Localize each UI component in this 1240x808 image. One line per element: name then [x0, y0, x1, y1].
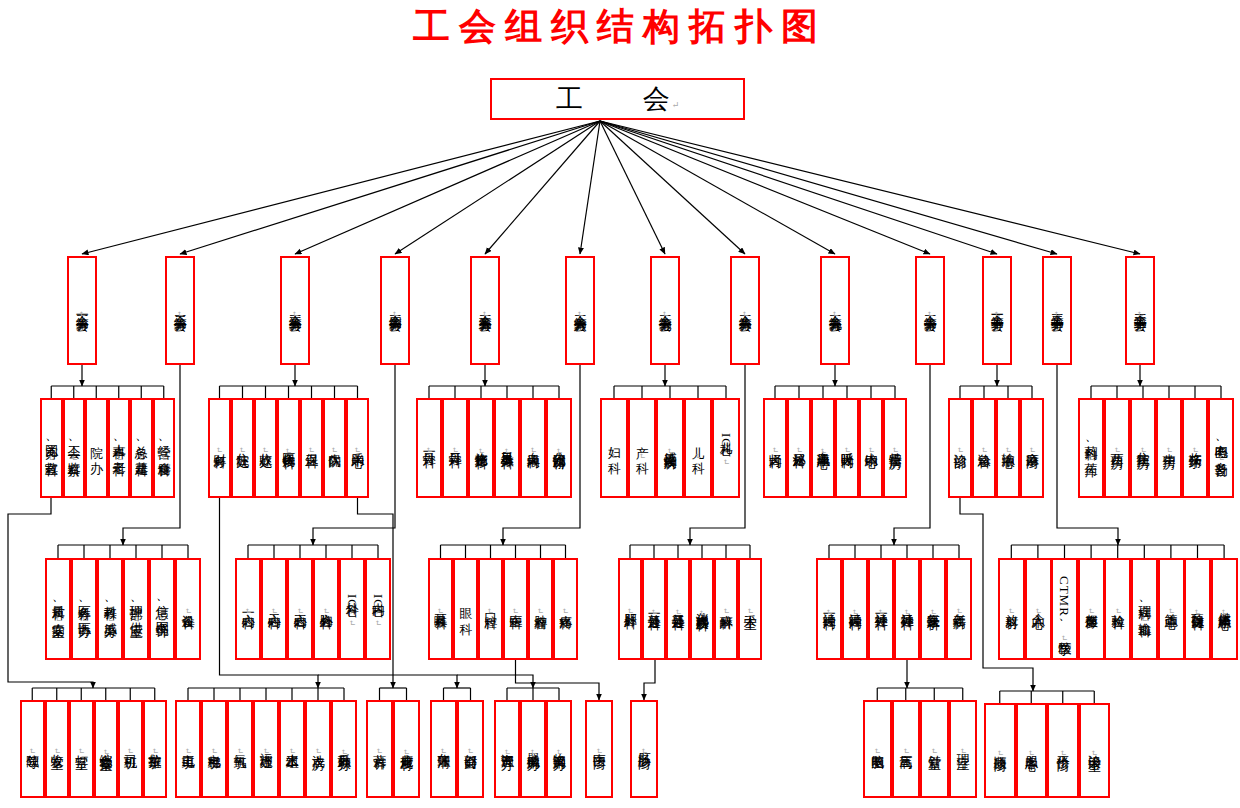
dept-box: 内保队: [323, 398, 346, 498]
dept-box: 康顺门诊: [984, 703, 1016, 798]
dept-box-label: 临床药学: [1188, 442, 1201, 454]
dept-box-label: 院 办: [90, 436, 103, 460]
branch-box-label: 工会第一分会: [75, 304, 88, 318]
dept-box: 健康体检中心: [1211, 558, 1238, 660]
dept-box-label: 心电图、多普勒: [1214, 434, 1227, 462]
dept-box-label: 普通外二科: [671, 603, 684, 616]
dept-box-label: 老年病科: [952, 603, 965, 615]
dept-box-label: 中医门诊: [592, 743, 605, 755]
dept-box-label: 护理部、供应室: [129, 595, 142, 623]
dept-box-label: 设备科: [181, 604, 194, 615]
dept-box-label: 预防保健科: [1191, 603, 1204, 616]
dept-box: 新针室: [920, 700, 949, 798]
dept-box-label: 血液净化中心: [816, 441, 829, 455]
dept-box: 筛查中心: [1158, 558, 1185, 660]
dept-box-label: 神经内二科: [848, 603, 861, 616]
dept-box-label: 康顺门诊: [993, 745, 1006, 757]
dept-box: 外科ICU: [339, 558, 365, 660]
dept-box: 心内三科: [287, 558, 313, 660]
dept-box-label: 信息、图书统计: [155, 595, 168, 623]
dept-box-label: 物资采购办: [552, 743, 565, 756]
dept-box-label: 心胸外科: [319, 603, 332, 615]
dept-box: 中药房: [1156, 398, 1182, 498]
dept-box: 放射科: [998, 558, 1025, 660]
dept-box: 信息、图书统计: [149, 558, 175, 660]
dept-box: 医务科、医协办: [71, 558, 97, 660]
dept-box-label: 心内二科: [267, 603, 280, 615]
branch-box-label: 工会第八分会: [738, 304, 751, 318]
dept-box: 神经内二科: [842, 558, 868, 660]
branch-box-label: 工会第二分会: [173, 304, 186, 318]
dept-box: 介入中心: [1025, 558, 1052, 660]
dept-box-label: 儿 科: [691, 436, 704, 460]
branch-box-label: 工会第十二分会: [1050, 303, 1063, 318]
dept-box-label: 烧伤整形科: [474, 442, 487, 455]
dept-box-label: 筛查中心: [1164, 603, 1177, 615]
dept-box: 质量科、病案室: [45, 558, 71, 660]
dept-box: 院 办: [85, 398, 108, 498]
dept-box: 救护车班: [143, 700, 168, 798]
dept-box-label: 洗衣房: [311, 744, 324, 755]
dept-box: 党团办、宣教科: [40, 398, 63, 498]
dept-box: 肾内科: [763, 398, 787, 498]
dept-box: 工会、监察科: [63, 398, 86, 498]
dept-box: 康龙度假村: [393, 700, 420, 798]
dept-box: 西药房: [1104, 398, 1130, 498]
dept-box-label: 肛肠门诊: [637, 743, 650, 755]
dept-box-label: 急诊科: [977, 443, 990, 454]
dept-box-label: 氧气班: [233, 744, 246, 755]
root-box: 工 会: [490, 78, 745, 120]
dept-box: 采购中心: [346, 398, 369, 498]
dept-box-label: 救护车班: [148, 743, 161, 755]
dept-box: 打字室: [69, 700, 94, 798]
dept-box: 财务科: [208, 398, 231, 498]
dept-box: 血液净化中心: [811, 398, 835, 498]
org-chart-page: 工会组织结构拓扑图 工 会 工会第一分会工会第二分会工会第三分会工会第四分会工会…: [0, 0, 1240, 808]
dept-box: 住院处: [231, 398, 254, 498]
dept-box: 医保物价科: [277, 398, 300, 498]
dept-box: 预防保健科: [1184, 558, 1211, 660]
dept-box-label: 口腔科: [484, 604, 497, 615]
dept-box-label: 新针室: [928, 744, 941, 755]
dept-box: 神经外二科: [894, 558, 920, 660]
dept-box-label: 麻章门诊: [1025, 442, 1038, 454]
dept-box: 心胸外科: [313, 558, 339, 660]
dept-box: 客服中心: [1016, 703, 1048, 798]
dept-box-label: 中医科: [509, 604, 522, 615]
dept-box-label: 输液中心: [1001, 442, 1014, 454]
dept-box: 产 科: [628, 398, 656, 498]
dept-box: 消化内科皮肤科: [690, 558, 714, 660]
dept-box-label: 儿科ICU: [719, 431, 732, 466]
dept-box: 感染性疾病科: [656, 398, 684, 498]
dept-box-label: 消化内科皮肤科: [695, 602, 708, 617]
branch-box: 工会第二分会: [165, 256, 195, 365]
dept-box-label: 耳鼻喉科: [434, 603, 447, 615]
dept-box: 心电图、多普勒: [1208, 398, 1234, 498]
dept-box-label: 理疗室: [956, 744, 969, 755]
branch-box-label: 工会第九分会: [828, 304, 841, 318]
dept-box-label: 工会、监察科: [67, 435, 80, 462]
branch-box-label: 工会第三分会: [288, 304, 301, 318]
dept-box-label: 客服中心: [1025, 745, 1038, 757]
dept-box: 资产管理办: [494, 700, 520, 798]
dept-box-label: 骨外一科: [422, 442, 435, 454]
dept-box: 病理科、输血科: [1131, 558, 1158, 660]
branch-box: 工会第十二分会: [1042, 256, 1072, 365]
dept-box-label: 泌尿外科: [792, 442, 805, 454]
branch-box: 工会第三分会: [280, 256, 310, 365]
dept-box-label: 心内三科: [293, 603, 306, 615]
dept-box-label: 康复医学科: [926, 603, 939, 616]
dept-box-label: 污水处理: [259, 743, 272, 755]
dept-box: 总务、基建科: [130, 398, 153, 498]
branch-box: 工会第十三分会: [1125, 256, 1155, 365]
dept-box: 门诊部: [948, 398, 972, 498]
dept-box: 欠账清理: [430, 700, 457, 798]
dept-box-label: 采购中心: [351, 442, 364, 454]
dept-box-label: 放射科: [1005, 604, 1018, 615]
dept-box-label: 检验科: [1111, 604, 1124, 615]
dept-box: 司机班: [118, 700, 143, 798]
dept-box-label: 电工班: [181, 744, 194, 755]
dept-box: 眼 科: [453, 558, 478, 660]
dept-box: 收发室: [45, 700, 70, 798]
dept-box: 特需病房: [883, 398, 907, 498]
dept-box: 高压氧: [892, 700, 921, 798]
dept-box: 肝胆外科: [618, 558, 642, 660]
dept-box-label: 介入中心: [1031, 603, 1044, 615]
branch-box-label: 工会第七分会: [658, 304, 671, 318]
dept-box-label: 健康体检中心: [1218, 602, 1231, 616]
dept-box: 科教科、感染办: [97, 558, 123, 660]
dept-box-label: 眼 科: [459, 597, 472, 621]
dept-box: 保卫科: [300, 398, 323, 498]
dept-box: 物资采购办: [546, 700, 572, 798]
dept-box-label: 部门财会: [464, 743, 477, 755]
dept-box-label: 器械采购办: [526, 743, 539, 756]
dept-box-label: 疼痛科: [559, 604, 572, 615]
dept-box-label: 脑电图: [871, 744, 884, 755]
dept-box-label: 收款处: [259, 443, 272, 454]
dept-box-label: 后勤外联办: [337, 743, 350, 756]
dept-box: 手术室: [738, 558, 762, 660]
dept-box: 平价门诊: [1047, 703, 1079, 798]
dept-box-label: 门诊部: [953, 443, 966, 454]
dept-box: 妇 科: [600, 398, 628, 498]
dept-box: 呼吸内科: [835, 398, 859, 498]
dept-box: 急诊科: [972, 398, 996, 498]
branch-box: 工会第五分会: [470, 256, 500, 365]
dept-box: 内科ICU: [365, 558, 391, 660]
dept-box-label: 医务科、医协办: [77, 595, 90, 623]
dept-box: 超声影像: [1078, 558, 1105, 660]
dept-box: 设备科: [175, 558, 201, 660]
dept-box: 电梯班: [201, 700, 227, 798]
dept-box-label: 神经内一科: [822, 603, 835, 616]
dept-box-label: CTMR、核医学: [1058, 576, 1071, 641]
branch-box: 工会第十一分会: [982, 256, 1012, 365]
branch-box-label: 工会第四分会: [388, 304, 401, 318]
dept-box-label: 打字室: [75, 744, 88, 755]
dept-box: 脑电图: [863, 700, 892, 798]
dept-box-label: 欠账清理: [437, 743, 450, 755]
dept-box: 儿 科: [684, 398, 712, 498]
dept-box: 肿瘤科: [528, 558, 553, 660]
dept-box-label: 特需病房: [888, 442, 901, 454]
dept-box-label: 肾内科: [768, 443, 781, 454]
branch-box: 工会第四分会: [380, 256, 410, 365]
dept-box: 普通外二科: [666, 558, 690, 660]
dept-box: 临床药学: [1182, 398, 1208, 498]
dept-box: 疼痛科: [553, 558, 578, 660]
dept-box: 部门财会: [457, 700, 484, 798]
dept-box: 水木工组: [279, 700, 305, 798]
dept-box: 营养科: [366, 700, 393, 798]
dept-box: 麻醉科: [714, 558, 738, 660]
dept-box-label: 高压氧: [899, 744, 912, 755]
dept-box-label: 医保物价科: [282, 442, 295, 455]
dept-box: 康复医学科: [920, 558, 946, 660]
dept-box-label: 心内一科: [241, 603, 254, 615]
dept-box: 口腔科: [478, 558, 503, 660]
dept-box-label: 人事科、老干科: [112, 434, 125, 462]
dept-box-label: 平价门诊: [1056, 745, 1069, 757]
dept-box-label: 感染性疾病科: [663, 441, 676, 455]
dept-box: 住院药房: [1130, 398, 1156, 498]
page-title: 工会组织结构拓扑图: [0, 2, 1240, 52]
branch-box-label: 工会第五分会: [478, 304, 491, 318]
dept-box: 肛肠门诊: [630, 700, 658, 798]
dept-box-label: 科教科、感染办: [103, 595, 116, 623]
dept-box-label: 病理科、输血科: [1138, 595, 1151, 623]
root-label: 工 会: [556, 81, 680, 117]
branch-box: 工会第六分会: [565, 256, 595, 365]
dept-box-label: 普通外一科: [647, 603, 660, 616]
dept-box: 洗衣房: [305, 700, 331, 798]
dept-box-label: 中药房: [1162, 443, 1175, 454]
dept-box-label: 财务科: [213, 443, 226, 454]
branch-box-label: 工会第十三分会: [1133, 303, 1146, 318]
dept-box-label: 骨外二科: [448, 442, 461, 454]
dept-box: 污水处理: [253, 700, 279, 798]
dept-box: 器械采购办: [520, 700, 546, 798]
dept-box: 输液中心: [996, 398, 1020, 498]
dept-box: 神经内一科: [816, 558, 842, 660]
dept-box-label: 妇 科: [607, 436, 620, 460]
dept-box: 普通外一科: [642, 558, 666, 660]
dept-box-label: 住院药房: [1136, 442, 1149, 454]
branch-box-label: 工会第六分会: [573, 304, 586, 318]
dept-box: 老年病科: [946, 558, 972, 660]
dept-box-label: 麻醉科: [719, 604, 732, 615]
dept-box: 氧气班: [227, 700, 253, 798]
dept-box-label: 内镜中心: [864, 442, 877, 454]
branch-box: 工会第七分会: [650, 256, 680, 365]
dept-box: 手足显微外科: [494, 398, 520, 498]
dept-box: 儿科ICU: [712, 398, 740, 498]
dept-box-label: 内科ICU: [371, 592, 384, 627]
dept-box: 院领导: [20, 700, 45, 798]
dept-box: 血液内科: [520, 398, 546, 498]
dept-box-label: 司机班: [124, 744, 137, 755]
dept-box-label: 神经外二科: [900, 603, 913, 616]
dept-box: 收款处: [254, 398, 277, 498]
dept-box: 心内二科: [261, 558, 287, 660]
dept-box-label: 肿瘤科: [534, 604, 547, 615]
dept-box: 内分泌代谢科: [546, 398, 572, 498]
dept-box: 综合档案室: [94, 700, 119, 798]
dept-box: 内镜中心: [859, 398, 883, 498]
branch-box: 工会第八分会: [730, 256, 760, 365]
dept-box-label: 神经外一科: [874, 603, 887, 616]
dept-box: 门诊手术室: [1079, 703, 1111, 798]
dept-box: 神经外一科: [868, 558, 894, 660]
branch-box-label: 工会第十一分会: [990, 303, 1003, 318]
dept-box-label: 肝胆外科: [623, 603, 636, 615]
branch-box: 工会第一分会: [67, 256, 97, 365]
branch-box: 工会第十分会: [915, 256, 945, 365]
dept-box-label: 营养科: [373, 744, 386, 755]
dept-box-label: 水木工组: [285, 743, 298, 755]
dept-box-label: 总务、基建科: [135, 435, 148, 462]
dept-box-label: 超声影像: [1085, 603, 1098, 615]
dept-box: 耳鼻喉科: [428, 558, 453, 660]
dept-box: 药剂科、药库: [1078, 398, 1104, 498]
dept-box-label: 产 科: [635, 436, 648, 460]
dept-box: 烧伤整形科: [468, 398, 494, 498]
dept-box-label: 电梯班: [207, 744, 220, 755]
dept-box-label: 保卫科: [305, 443, 318, 454]
branch-box-label: 工会第十分会: [923, 304, 936, 318]
dept-box-label: 资产管理办: [500, 743, 513, 756]
dept-box-label: 经营、膳食科: [157, 435, 170, 462]
dept-box: 骨外一科: [416, 398, 442, 498]
dept-box: 中医门诊: [585, 700, 613, 798]
dept-box: CTMR、核医学: [1051, 558, 1078, 660]
dept-box: 理疗室: [949, 700, 978, 798]
dept-box-label: 手足显微外科: [500, 441, 513, 455]
dept-box: 骨外二科: [442, 398, 468, 498]
dept-box: 泌尿外科: [787, 398, 811, 498]
dept-box-label: 呼吸内科: [840, 442, 853, 454]
dept-box: 心内一科: [235, 558, 261, 660]
dept-box-label: 内保队: [328, 443, 341, 454]
dept-box: 检验科: [1104, 558, 1131, 660]
dept-box-label: 党团办、宣教科: [45, 434, 58, 462]
dept-box: 人事科、老干科: [108, 398, 131, 498]
dept-box: 护理部、供应室: [123, 558, 149, 660]
branch-box: 工会第九分会: [820, 256, 850, 365]
dept-box-label: 门诊手术室: [1088, 744, 1101, 757]
dept-box-label: 手术室: [743, 604, 756, 615]
dept-box: 后勤外联办: [331, 700, 357, 798]
dept-box: 经营、膳食科: [153, 398, 176, 498]
dept-box-label: 综合档案室: [99, 743, 112, 756]
dept-box-label: 质量科、病案室: [51, 595, 64, 623]
dept-box-label: 康龙度假村: [400, 743, 413, 756]
dept-box-label: 内分泌代谢科: [552, 441, 565, 455]
dept-box-label: 血液内科: [526, 442, 539, 454]
dept-box: 中医科: [503, 558, 528, 660]
dept-box-label: 院领导: [26, 744, 39, 755]
dept-box: 麻章门诊: [1020, 398, 1044, 498]
dept-box-label: 西药房: [1110, 443, 1123, 454]
dept-box-label: 外科ICU: [345, 592, 358, 627]
dept-box-label: 药剂科、药库: [1084, 435, 1097, 462]
dept-box: 电工班: [175, 700, 201, 798]
dept-box-label: 住院处: [236, 443, 249, 454]
dept-box-label: 收发室: [50, 744, 63, 755]
